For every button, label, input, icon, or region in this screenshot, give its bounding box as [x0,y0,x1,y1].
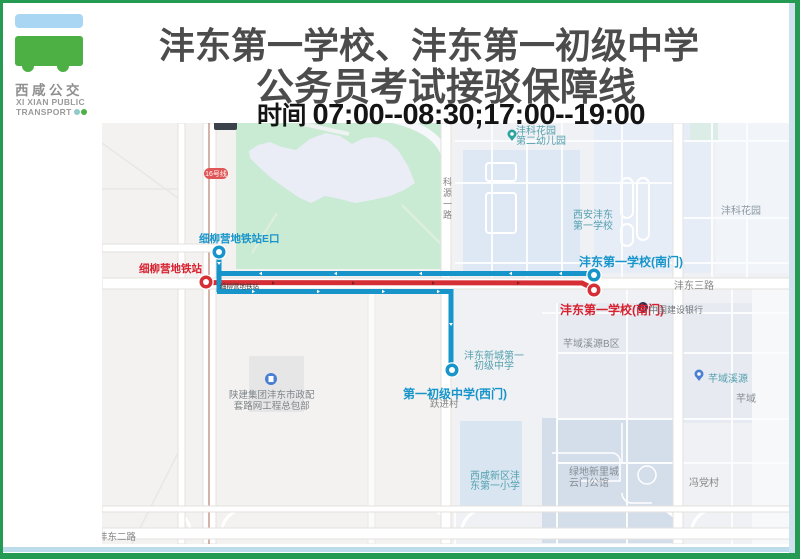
svg-text:细柳营地铁站: 细柳营地铁站 [220,282,260,291]
svg-text:16号线: 16号线 [205,169,227,178]
